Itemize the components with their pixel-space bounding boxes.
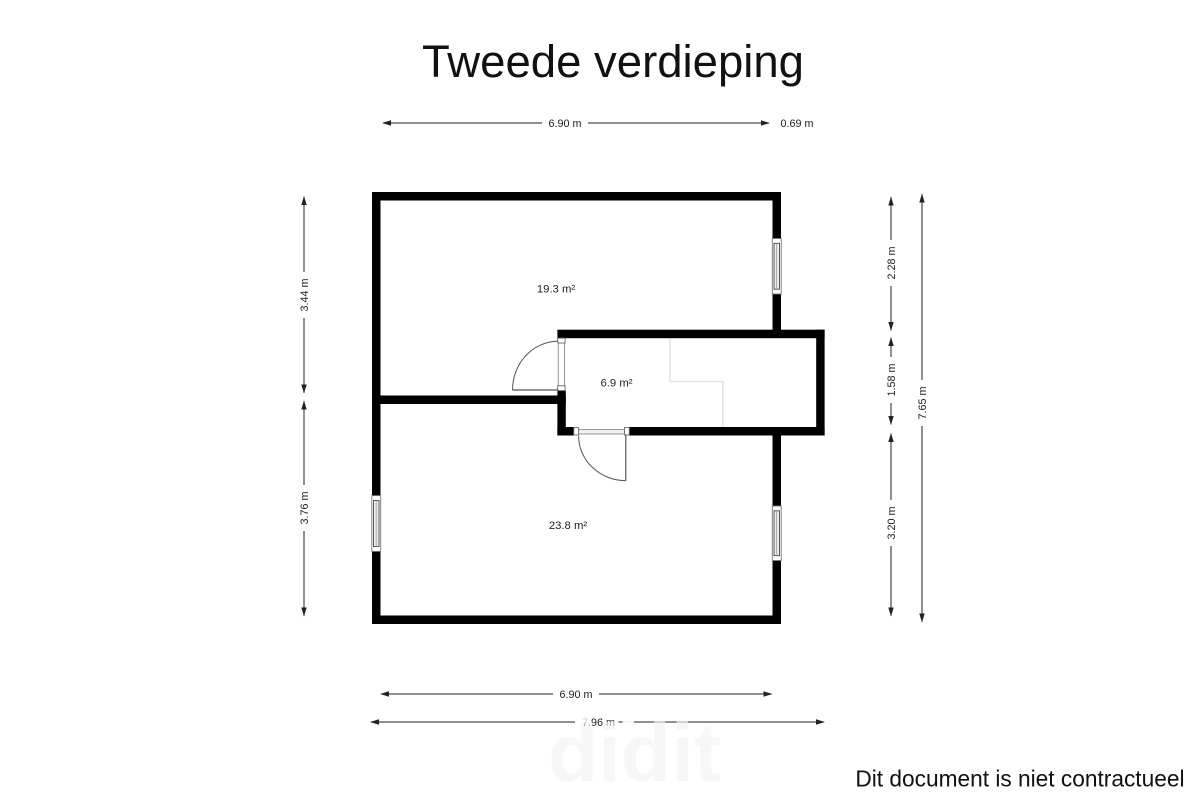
svg-text:3.20 m: 3.20 m xyxy=(886,506,898,539)
svg-text:3.44 m: 3.44 m xyxy=(299,278,311,311)
svg-text:6.9 m²: 6.9 m² xyxy=(600,377,632,389)
svg-text:didit: didit xyxy=(548,708,721,799)
svg-text:2.28 m: 2.28 m xyxy=(886,246,898,279)
svg-text:7.65 m: 7.65 m xyxy=(917,386,929,419)
svg-text:Dit document is niet contractu: Dit document is niet contractueel xyxy=(855,766,1184,792)
svg-text:1.58 m: 1.58 m xyxy=(886,363,898,396)
svg-text:0.69 m: 0.69 m xyxy=(780,118,813,130)
svg-text:6.90 m: 6.90 m xyxy=(559,689,592,701)
svg-text:6.90 m: 6.90 m xyxy=(548,118,581,130)
svg-text:Tweede verdieping: Tweede verdieping xyxy=(422,36,804,87)
svg-text:19.3 m²: 19.3 m² xyxy=(537,284,576,296)
svg-text:23.8 m²: 23.8 m² xyxy=(549,520,588,532)
svg-text:3.76 m: 3.76 m xyxy=(299,491,311,524)
